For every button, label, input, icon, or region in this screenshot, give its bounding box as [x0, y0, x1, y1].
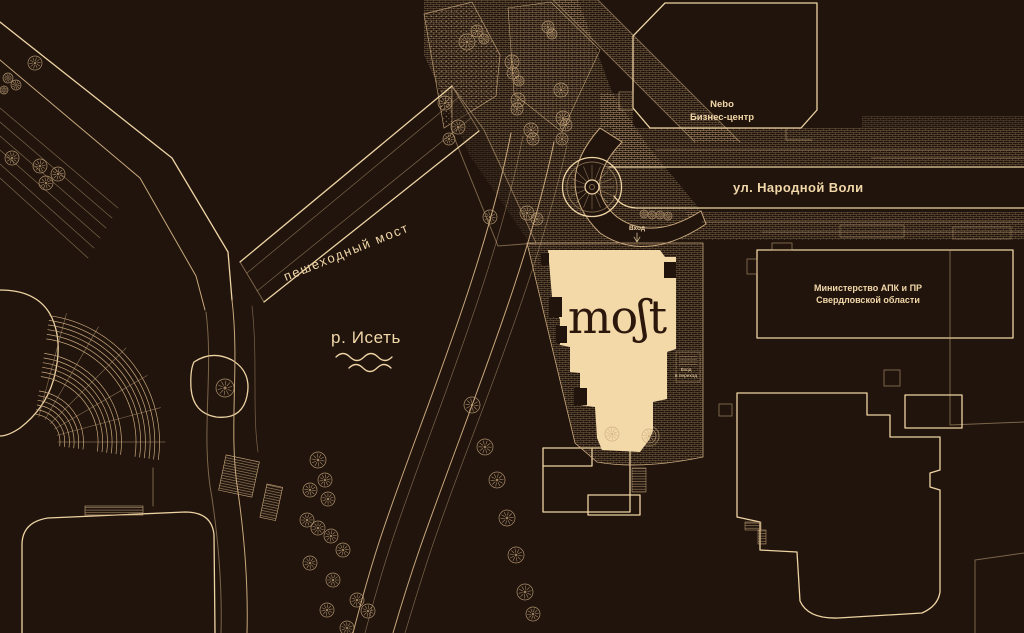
entrance-steps [85, 506, 143, 515]
nebo-label-line2: Бизнес-центр [690, 112, 754, 123]
ministry-label-line1: Министерство АПК и ПР [814, 283, 922, 293]
passage-label-line2: в переход [675, 374, 697, 379]
map-canvas: Nebo Бизнес-центр Министерство АПК и ПР … [0, 0, 1024, 633]
river-label: р. Исеть [331, 328, 401, 347]
street-label: ул. Народной Воли [733, 180, 864, 195]
most-logo: moʃt [568, 290, 668, 344]
nebo-label-line1: Nebo [710, 99, 734, 110]
entrance-label: Вход [629, 225, 645, 232]
site-plan-map: Nebo Бизнес-центр Министерство АПК и ПР … [0, 0, 1024, 633]
passage-label-line1: Вход [681, 367, 692, 373]
north-sidewalk [612, 128, 1024, 166]
north-strip [862, 116, 1024, 128]
south-sidewalk [676, 212, 1024, 240]
ministry-label-line2: Свердловской области [816, 295, 920, 305]
